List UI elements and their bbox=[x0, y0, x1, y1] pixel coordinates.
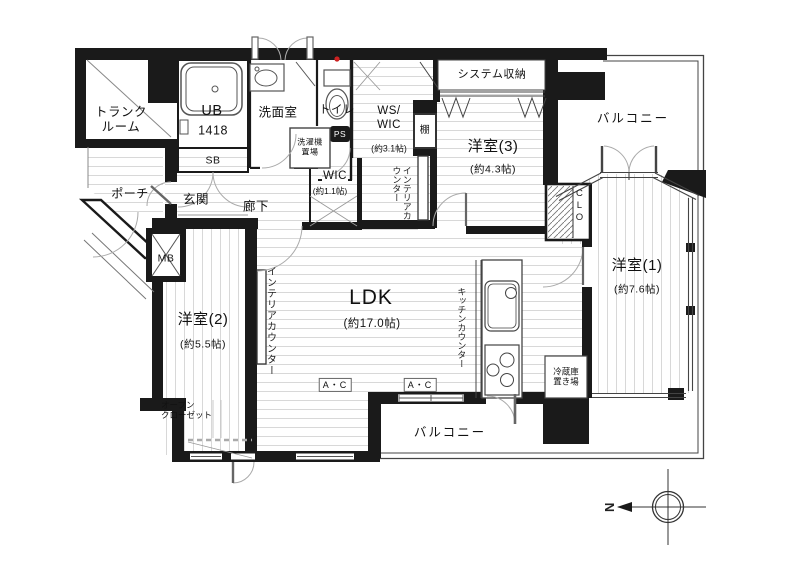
label-kitchen-counter: キッチンカウンター bbox=[456, 287, 466, 379]
label-wic-size: (約1.1帖) bbox=[313, 186, 347, 196]
label-room3: 洋室(3) bbox=[468, 138, 519, 156]
label-porch: ポーチ bbox=[111, 187, 149, 202]
label-hallway: 廊下 bbox=[243, 199, 269, 214]
label-room2: 洋室(2) bbox=[178, 311, 229, 329]
label-toilet: トイレ bbox=[319, 103, 355, 117]
label-ws-wic: WS/ WIC bbox=[377, 104, 401, 132]
floorplan-page: トランク ルーム UB 1418 洗面室 トイレ PS PS 洗濯機 置場 WS… bbox=[0, 0, 800, 565]
label-balcony-bottom: バルコニー bbox=[414, 425, 486, 440]
label-ps-upper-w: PS bbox=[334, 129, 346, 139]
label-room2-size: (約5.5帖) bbox=[180, 339, 226, 352]
label-open-closet: オープン クローゼット bbox=[161, 400, 212, 421]
washbasin bbox=[250, 62, 315, 91]
label-ps-kitchen: PS bbox=[486, 264, 498, 274]
label-trunk-room: トランク ルーム bbox=[95, 105, 147, 136]
label-unit-bath-size: 1418 bbox=[198, 123, 228, 138]
label-room3-size: (約4.3帖) bbox=[470, 164, 516, 177]
label-ac-1: A・C bbox=[319, 378, 352, 392]
label-meter-box: MB bbox=[158, 253, 175, 266]
kitchen bbox=[476, 260, 522, 398]
label-interior-counter-ldk: インテリアカウンター bbox=[264, 266, 276, 398]
label-ldk: LDK bbox=[349, 285, 393, 311]
label-room1: 洋室(1) bbox=[612, 257, 663, 275]
label-balcony-top: バルコニー bbox=[597, 111, 669, 126]
label-washer-space: 洗濯機 置場 bbox=[297, 137, 323, 157]
label-north: N bbox=[602, 502, 618, 512]
label-system-storage: システム収納 bbox=[458, 68, 527, 81]
label-clo: CLO bbox=[573, 188, 584, 240]
label-washroom: 洗面室 bbox=[258, 105, 297, 120]
label-ac-2: A・C bbox=[404, 378, 437, 392]
label-wic: WIC bbox=[323, 169, 347, 183]
label-room1-size: (約7.6帖) bbox=[614, 284, 660, 297]
label-unit-bath: UB bbox=[201, 103, 222, 121]
label-ws-wic-size: (約3.1帖) bbox=[371, 144, 407, 155]
label-shelf: 棚 bbox=[420, 125, 431, 137]
alarm-dot bbox=[334, 56, 339, 61]
label-ldk-size: (約17.0帖) bbox=[343, 317, 400, 331]
label-interior-counter-hall: インテリアカウンター bbox=[391, 166, 412, 222]
label-entrance: 玄関 bbox=[183, 192, 209, 207]
label-refrigerator: 冷蔵庫 置き場 bbox=[553, 367, 579, 388]
label-shoe-box: SB bbox=[205, 155, 220, 168]
floorplan-drawing bbox=[0, 0, 800, 565]
compass bbox=[617, 469, 706, 545]
